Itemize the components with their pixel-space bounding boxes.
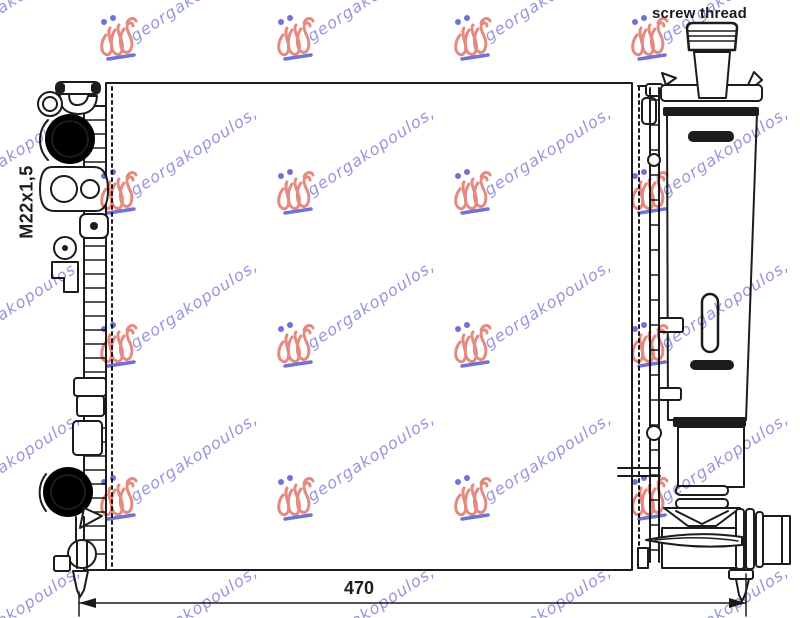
radiator-technical-drawing: screw thread M22x1,5 470 georgakopoulos, xyxy=(0,0,800,618)
hose-flange-plate xyxy=(40,167,108,211)
thread-size-label: M22x1,5 xyxy=(17,165,38,239)
top-mounting-bracket xyxy=(38,82,100,116)
outlet-hose-pipe xyxy=(736,509,790,569)
screw-thread-label: screw thread xyxy=(652,5,764,22)
drain-plug xyxy=(729,570,753,601)
mid-brackets xyxy=(73,378,106,455)
radiator-drawing-svg xyxy=(0,0,800,618)
left-tank-assembly xyxy=(38,82,108,597)
inlet-port xyxy=(40,114,95,164)
width-dimension xyxy=(79,574,746,616)
width-dimension-label: 470 xyxy=(323,578,395,599)
bottom-outlet-assembly xyxy=(646,486,790,601)
expansion-tank xyxy=(659,23,762,487)
